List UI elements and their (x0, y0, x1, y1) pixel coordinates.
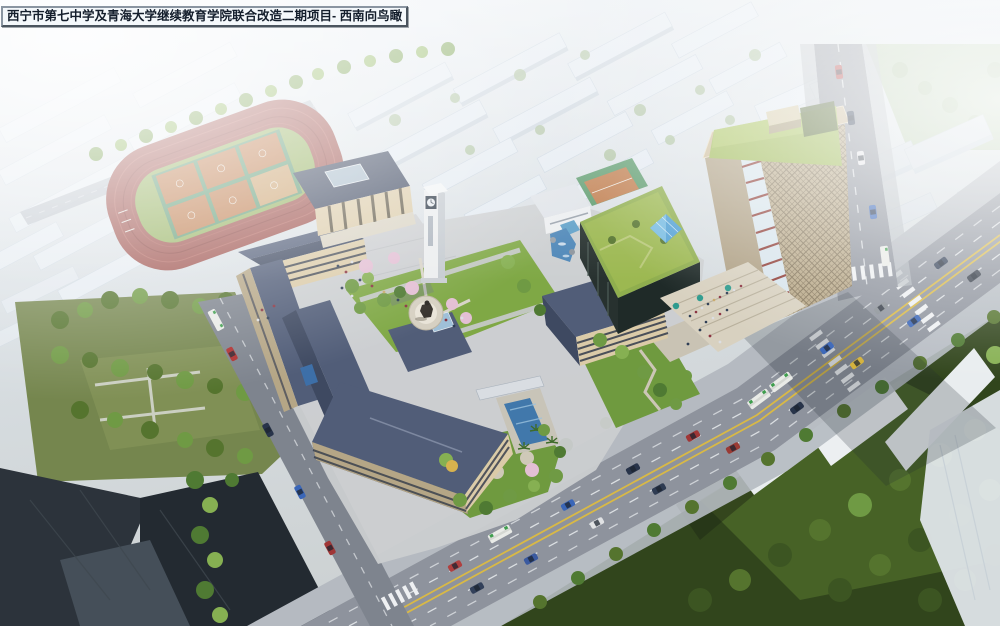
project-title-label: 西宁市第七中学及青海大学继续教育学院联合改造二期项目- 西南向鸟瞰 (1, 6, 408, 27)
rendering-viewport: 西宁市第七中学及青海大学继续教育学院联合改造二期项目- 西南向鸟瞰 (0, 0, 1000, 626)
sun-glare-east (0, 0, 1000, 626)
rendering-canvas (0, 0, 1000, 626)
project-title-text: 西宁市第七中学及青海大学继续教育学院联合改造二期项目- 西南向鸟瞰 (7, 9, 402, 23)
